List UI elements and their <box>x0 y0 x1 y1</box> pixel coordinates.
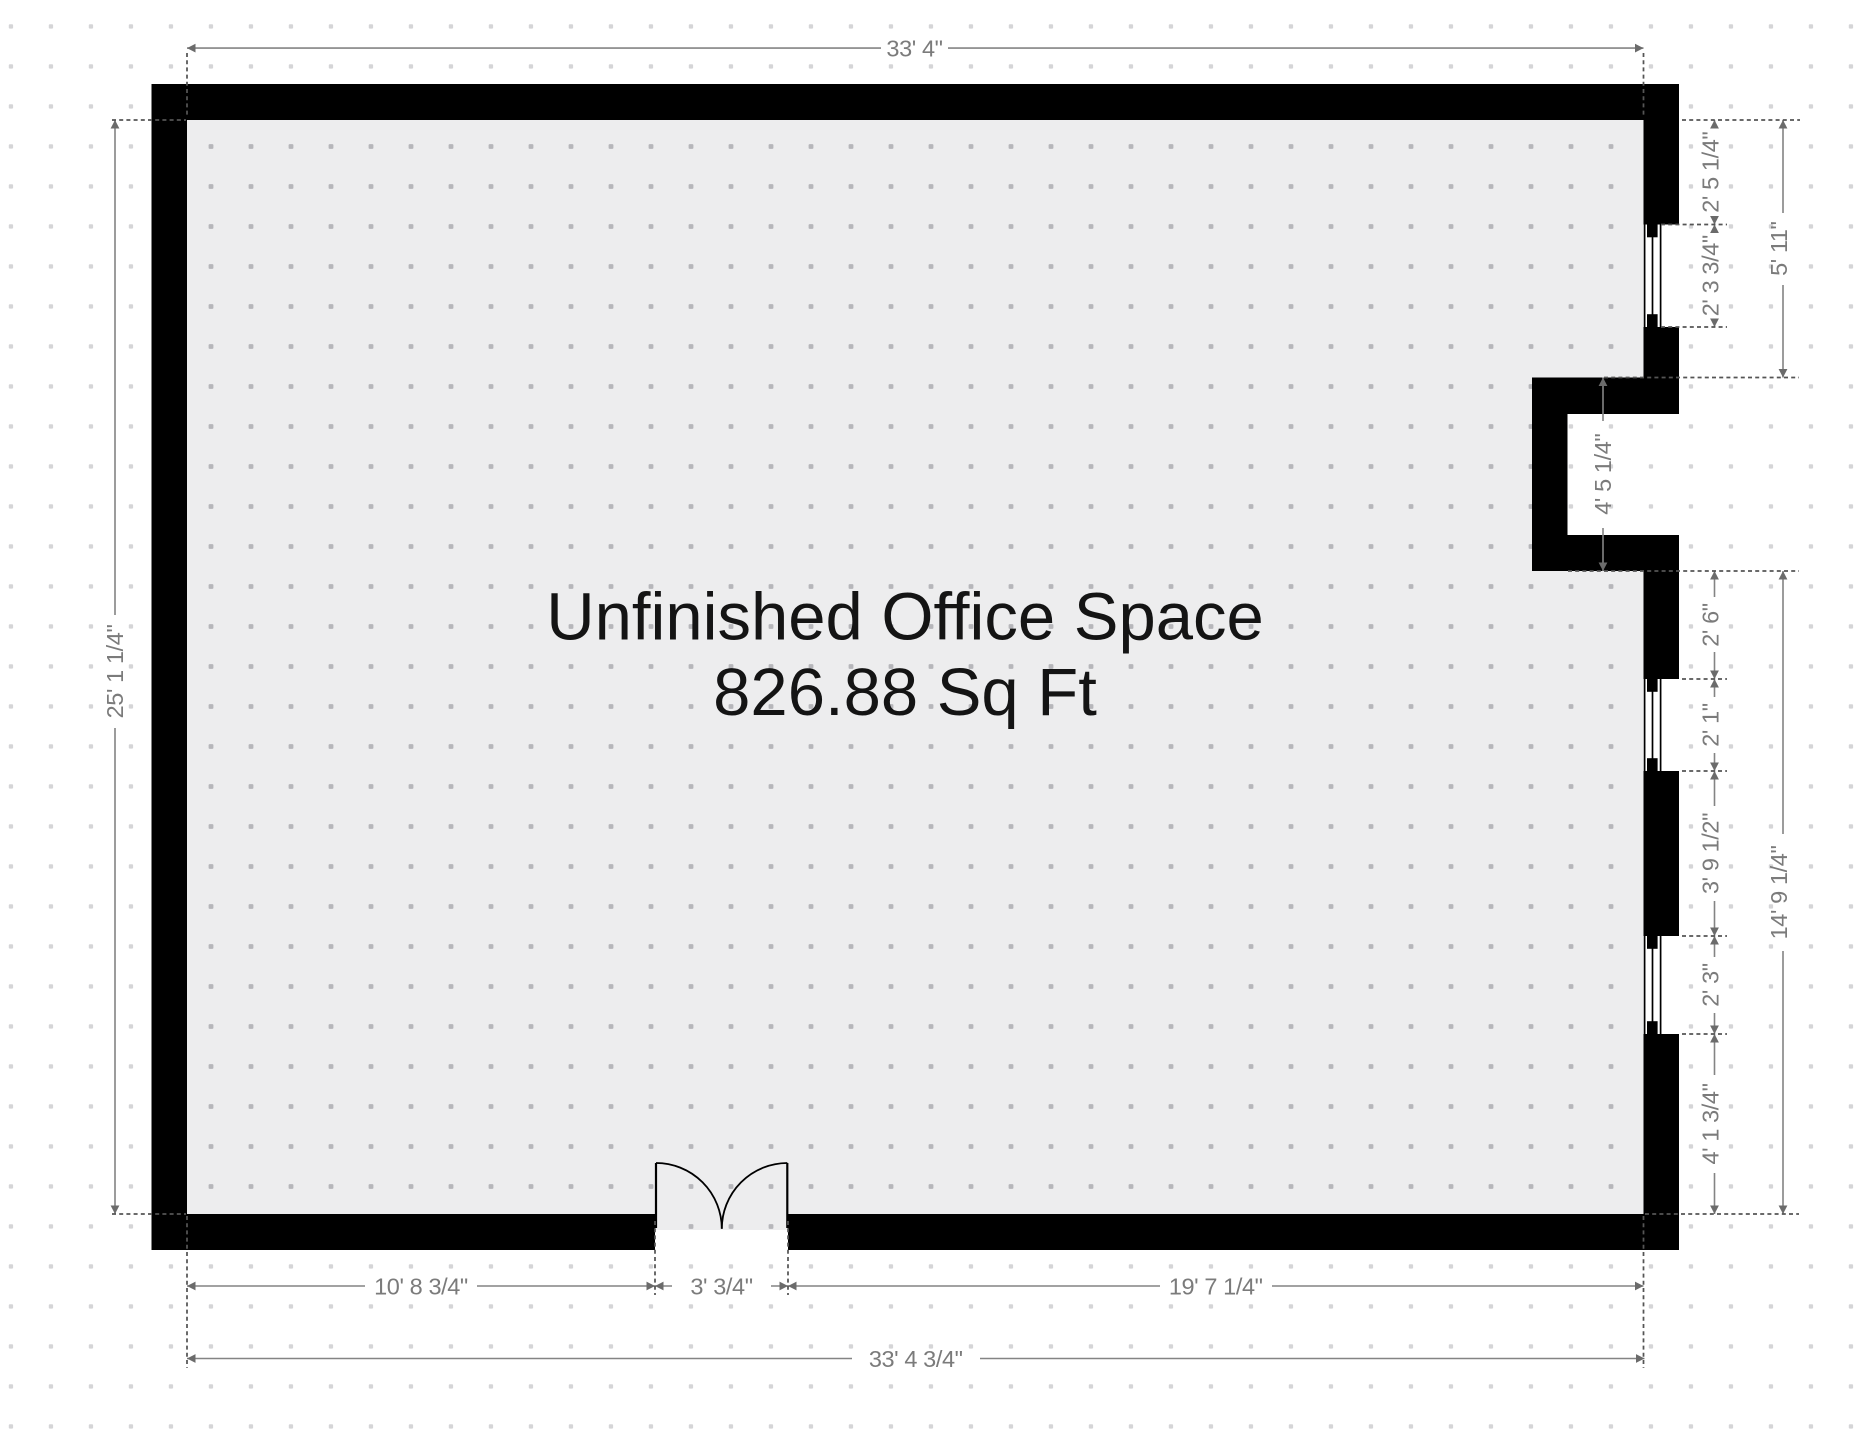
svg-text:25' 1 1/4": 25' 1 1/4" <box>102 625 128 719</box>
svg-text:826.88 Sq Ft: 826.88 Sq Ft <box>713 655 1097 730</box>
svg-text:4' 1 3/4": 4' 1 3/4" <box>1698 1083 1724 1164</box>
svg-text:33' 4": 33' 4" <box>886 36 942 62</box>
svg-text:3' 3/4": 3' 3/4" <box>690 1273 752 1299</box>
svg-text:2' 6": 2' 6" <box>1698 603 1724 647</box>
svg-text:3' 9 1/2": 3' 9 1/2" <box>1698 813 1724 894</box>
svg-text:14' 9 1/4": 14' 9 1/4" <box>1766 846 1792 940</box>
svg-text:10' 8 3/4": 10' 8 3/4" <box>374 1273 468 1299</box>
svg-text:2' 3": 2' 3" <box>1698 963 1724 1007</box>
svg-text:4' 5 1/4": 4' 5 1/4" <box>1590 434 1616 515</box>
svg-text:2' 1": 2' 1" <box>1698 703 1724 747</box>
svg-text:Unfinished Office Space: Unfinished Office Space <box>546 580 1264 655</box>
svg-text:33' 4 3/4": 33' 4 3/4" <box>869 1346 963 1372</box>
svg-text:19' 7 1/4": 19' 7 1/4" <box>1169 1273 1263 1299</box>
svg-text:2' 5 1/4": 2' 5 1/4" <box>1698 132 1724 213</box>
svg-text:5' 11": 5' 11" <box>1766 221 1792 275</box>
svg-text:2' 3 3/4": 2' 3 3/4" <box>1698 235 1724 316</box>
